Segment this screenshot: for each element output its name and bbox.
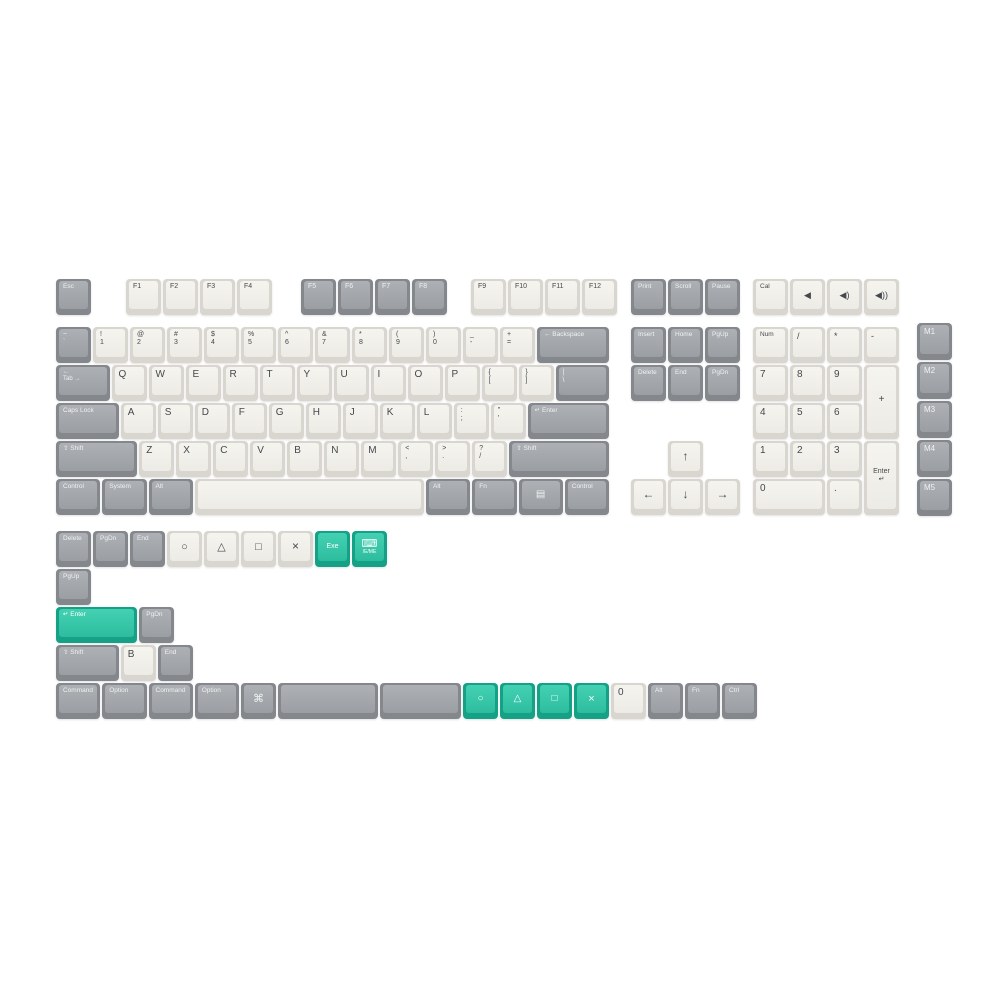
key-np-8: 8 bbox=[790, 365, 825, 401]
key-arrow-right-icon-label: → bbox=[717, 488, 729, 502]
key-m4-label: M4 bbox=[924, 444, 935, 453]
key-arrow-right-icon-cap: → bbox=[708, 481, 737, 509]
key-mute-icon-label: ◀ bbox=[804, 290, 811, 300]
key-f1-cap: F1 bbox=[129, 281, 158, 309]
key-extra-delete-cap: Delete bbox=[59, 533, 88, 561]
key-extra-delete-label: Delete bbox=[63, 535, 82, 542]
key-m3-label: M3 bbox=[924, 405, 935, 414]
key-h-cap: H bbox=[309, 405, 338, 433]
key-v: V bbox=[250, 441, 285, 477]
key-f2-label: F2 bbox=[170, 283, 178, 291]
key-extra-enter-teal-label: ↵ Enter bbox=[63, 611, 86, 618]
key-home: Home bbox=[668, 327, 703, 363]
key-y-cap: Y bbox=[300, 367, 329, 395]
key-f3-cap: F3 bbox=[203, 281, 232, 309]
key-grave-label: ~ bbox=[63, 331, 67, 339]
key-np-9: 9 bbox=[827, 365, 862, 401]
arrow-block: ↑←↓→ bbox=[630, 440, 741, 516]
key-x-label: X bbox=[183, 445, 190, 457]
key-a-label: A bbox=[128, 407, 135, 419]
key-minus: _- bbox=[463, 327, 498, 363]
key-np-7-cap: 7 bbox=[756, 367, 785, 395]
key-6-cap: ^6 bbox=[281, 329, 310, 357]
key-j-cap: J bbox=[346, 405, 375, 433]
key-f3-label: F3 bbox=[207, 283, 215, 291]
key-extra-0-label: 0 bbox=[618, 687, 624, 699]
key-g-cap: G bbox=[272, 405, 301, 433]
key-np-minus-label: - bbox=[871, 331, 874, 341]
key-f11-label: F11 bbox=[552, 283, 564, 291]
nav-block-row-1: DeleteEndPgDn bbox=[630, 364, 741, 402]
function-row-media-row-0: Cal◀◀)◀)) bbox=[752, 278, 900, 316]
key-ralt-cap: Alt bbox=[429, 481, 467, 509]
key-pgup: PgUp bbox=[705, 327, 740, 363]
key-slash-cap: ?/ bbox=[475, 443, 504, 471]
key-m5-cap: M5 bbox=[920, 481, 949, 510]
key-option-2-cap: Option bbox=[198, 685, 236, 713]
function-row-main: EscF1F2F3F4F5F6F7F8F9F10F11F12 bbox=[55, 278, 618, 316]
key-5-cap: %5 bbox=[244, 329, 273, 357]
key-6-label: 6 bbox=[285, 339, 289, 347]
key-np-enter-label: Enter bbox=[873, 468, 890, 476]
key-command-1-cap: Command bbox=[59, 685, 97, 713]
main-block-row-4: ControlSystemAltAltFn▤Control bbox=[55, 478, 610, 516]
key-j-label: J bbox=[350, 407, 355, 419]
extras-block-row-1: PgUp bbox=[55, 568, 758, 606]
key-mute-icon-cap: ◀ bbox=[793, 281, 822, 309]
key-pause-cap: Pause bbox=[708, 281, 737, 309]
key-lbracket-label: { bbox=[489, 369, 491, 377]
key-extra-fn-label: Fn bbox=[692, 687, 700, 694]
key-print-cap: Print bbox=[634, 281, 663, 309]
key-extra-fn: Fn bbox=[685, 683, 720, 719]
key-esc-cap: Esc bbox=[59, 281, 88, 309]
arrow-block-row-1: ←↓→ bbox=[630, 478, 741, 516]
key-f10: F10 bbox=[508, 279, 543, 315]
key-tab-cap: ←Tab → bbox=[59, 367, 107, 395]
key-m1-label: M1 bbox=[924, 327, 935, 336]
key-rcontrol-label: Control bbox=[572, 483, 593, 490]
key-np-8-cap: 8 bbox=[793, 367, 822, 395]
key-tab-label: Tab → bbox=[63, 376, 80, 383]
key-m1-cap: M1 bbox=[920, 325, 949, 354]
key-8-cap: *8 bbox=[355, 329, 384, 357]
key-np-5-label: 5 bbox=[797, 407, 803, 419]
key-n-cap: N bbox=[327, 443, 356, 471]
key-7-label: 7 bbox=[322, 339, 326, 347]
macro-column: M1M2M3M4M5 bbox=[916, 322, 953, 517]
nav-block: InsertHomePgUpDeleteEndPgDn bbox=[630, 326, 741, 402]
key-2-cap: @2 bbox=[133, 329, 162, 357]
key-np-dot: . bbox=[827, 479, 862, 515]
key-3-label: # bbox=[174, 331, 178, 339]
key-comma-label: < bbox=[405, 445, 409, 453]
key-circle-icon-cap: ○ bbox=[170, 533, 199, 561]
key-square-icon: □ bbox=[241, 531, 276, 567]
key-pgdn-label: PgDn bbox=[712, 369, 728, 376]
key-extra-alt-cap: Alt bbox=[651, 685, 680, 713]
key-j: J bbox=[343, 403, 378, 439]
key-d-cap: D bbox=[198, 405, 227, 433]
key-r-cap: R bbox=[226, 367, 255, 395]
key-0: )0 bbox=[426, 327, 461, 363]
key-t: T bbox=[260, 365, 295, 401]
key-z-cap: Z bbox=[142, 443, 171, 471]
macro-column-row-3: M4 bbox=[916, 439, 953, 478]
key-k-label: K bbox=[387, 407, 394, 419]
key-pgup-cap: PgUp bbox=[708, 329, 737, 357]
key-f5-cap: F5 bbox=[304, 281, 333, 309]
key-2-label: 2 bbox=[137, 339, 141, 347]
key-exe: Exe bbox=[315, 531, 350, 567]
key-numlock-cap: Num bbox=[756, 329, 785, 357]
key-exe-cap: Exe bbox=[318, 533, 347, 561]
key-e-cap: E bbox=[189, 367, 218, 395]
key-f4: F4 bbox=[237, 279, 272, 315]
key-arrow-right-icon: → bbox=[705, 479, 740, 515]
key-b-label: B bbox=[294, 445, 301, 457]
key-fn-cap: Fn bbox=[475, 481, 513, 509]
key-delete-cap: Delete bbox=[634, 367, 663, 395]
key-extra-0: 0 bbox=[611, 683, 646, 719]
key-extra-alt-label: Alt bbox=[655, 687, 663, 694]
key-np-2: 2 bbox=[790, 441, 825, 477]
key-np-6-cap: 6 bbox=[830, 405, 859, 433]
key-circle-teal-icon-label: ○ bbox=[477, 693, 483, 705]
key-end-label: End bbox=[675, 369, 687, 376]
key-1-label: 1 bbox=[100, 339, 104, 347]
key-ralt-label: Alt bbox=[433, 483, 441, 490]
key-f2-cap: F2 bbox=[166, 281, 195, 309]
key-np-9-cap: 9 bbox=[830, 367, 859, 395]
key-backslash-label: | bbox=[563, 369, 565, 377]
key-keyboard-novelty-icon: ⌨/E/ME bbox=[352, 531, 387, 567]
key-arrow-left-icon: ← bbox=[631, 479, 666, 515]
key-np-slash-cap: / bbox=[793, 329, 822, 357]
key-9-label: 9 bbox=[396, 339, 400, 347]
key-np-7: 7 bbox=[753, 365, 788, 401]
key-arrow-down-icon-label: ↓ bbox=[683, 488, 689, 502]
nav-block-row-0: InsertHomePgUp bbox=[630, 326, 741, 364]
key-a: A bbox=[121, 403, 156, 439]
key-numlock-label: Num bbox=[760, 331, 774, 338]
key-np-0-label: 0 bbox=[760, 483, 766, 495]
key-e-label: E bbox=[193, 369, 200, 381]
key-5-label: 5 bbox=[248, 339, 252, 347]
key-f12-label: F12 bbox=[589, 283, 601, 291]
key-m3-cap: M3 bbox=[920, 403, 949, 432]
key-0-label: 0 bbox=[433, 339, 437, 347]
key-np-enter-label: ↵ bbox=[879, 476, 885, 484]
key-k-cap: K bbox=[383, 405, 412, 433]
key-np-plus-cap: + bbox=[867, 367, 896, 433]
key-0-cap: )0 bbox=[429, 329, 458, 357]
key-m4-cap: M4 bbox=[920, 442, 949, 471]
key-np-4: 4 bbox=[753, 403, 788, 439]
key-extra-ctrl: Ctrl bbox=[722, 683, 757, 719]
key-backspace: ← Backspace bbox=[537, 327, 609, 363]
key-cmd-symbol-icon: ⌘ bbox=[241, 683, 276, 719]
key-p: P bbox=[445, 365, 480, 401]
key-space-gray-2 bbox=[380, 683, 461, 719]
key-f9: F9 bbox=[471, 279, 506, 315]
key-minus-label: - bbox=[470, 339, 472, 347]
key-3-label: 3 bbox=[174, 339, 178, 347]
key-np-4-cap: 4 bbox=[756, 405, 785, 433]
key-quote-label: " bbox=[498, 407, 501, 415]
extras-block-row-3: ⇧ ShiftBEnd bbox=[55, 644, 758, 682]
key-circle-icon: ○ bbox=[167, 531, 202, 567]
key-extra-end-label: End bbox=[137, 535, 149, 542]
key-enter: ↵ Enter bbox=[528, 403, 609, 439]
key-np-6-label: 6 bbox=[834, 407, 840, 419]
key-keyboard-novelty-icon-label: ⌨ bbox=[362, 539, 378, 550]
key-3: #3 bbox=[167, 327, 202, 363]
key-delete-label: Delete bbox=[638, 369, 657, 376]
key-np-3: 3 bbox=[827, 441, 862, 477]
key-menu-icon-cap: ▤ bbox=[522, 481, 560, 509]
key-extra-b-label: B bbox=[128, 649, 135, 661]
key-5: %5 bbox=[241, 327, 276, 363]
key-extra-shift-cap: ⇧ Shift bbox=[59, 647, 116, 675]
key-f6-cap: F6 bbox=[341, 281, 370, 309]
key-grave: ~` bbox=[56, 327, 91, 363]
key-cross-icon-cap: × bbox=[281, 533, 310, 561]
key-np-2-label: 2 bbox=[797, 445, 803, 457]
key-6-label: ^ bbox=[285, 331, 288, 339]
key-7-cap: &7 bbox=[318, 329, 347, 357]
key-f7: F7 bbox=[375, 279, 410, 315]
key-w: W bbox=[149, 365, 184, 401]
key-m2-cap: M2 bbox=[920, 364, 949, 393]
key-capslock-cap: Caps Lock bbox=[59, 405, 116, 433]
key-n: N bbox=[324, 441, 359, 477]
key-insert: Insert bbox=[631, 327, 666, 363]
key-6: ^6 bbox=[278, 327, 313, 363]
key-t-label: T bbox=[267, 369, 273, 381]
key-circle-icon-label: ○ bbox=[181, 541, 188, 554]
key-rbracket: }] bbox=[519, 365, 554, 401]
main-block-row-2: Caps LockASDFGHJKL:;"'↵ Enter bbox=[55, 402, 610, 440]
key-v-label: V bbox=[257, 445, 264, 457]
key-circle-teal-icon-cap: ○ bbox=[466, 685, 495, 713]
key-np-5-cap: 5 bbox=[793, 405, 822, 433]
key-f2: F2 bbox=[163, 279, 198, 315]
key-extra-pgup: PgUp bbox=[56, 569, 91, 605]
key-m-label: M bbox=[368, 445, 376, 457]
key-rbracket-label: } bbox=[526, 369, 528, 377]
key-0-label: ) bbox=[433, 331, 435, 339]
key-insert-cap: Insert bbox=[634, 329, 663, 357]
key-command-2-label: Command bbox=[156, 687, 186, 694]
key-lshift: ⇧ Shift bbox=[56, 441, 137, 477]
key-backslash: |\ bbox=[556, 365, 610, 401]
key-r-label: R bbox=[230, 369, 237, 381]
key-f4-label: F4 bbox=[244, 283, 252, 291]
key-menu-icon-label: ▤ bbox=[536, 489, 545, 501]
key-np-3-cap: 3 bbox=[830, 443, 859, 471]
key-equal-label: = bbox=[507, 339, 511, 347]
key-np-enter: Enter↵ bbox=[864, 441, 899, 515]
key-period-label: . bbox=[442, 453, 444, 461]
key-volume-down-icon: ◀) bbox=[827, 279, 862, 315]
key-u-cap: U bbox=[337, 367, 366, 395]
key-9-label: ( bbox=[396, 331, 398, 339]
key-g-label: G bbox=[276, 407, 284, 419]
key-insert-label: Insert bbox=[638, 331, 654, 338]
key-triangle-icon-label: △ bbox=[217, 541, 225, 554]
main-block: ~`!1@2#3$4%5^6&7*8(9)0_-+=← Backspace←Ta… bbox=[55, 326, 610, 516]
key-semicolon: :; bbox=[454, 403, 489, 439]
key-capslock-label: Caps Lock bbox=[63, 407, 94, 414]
key-4-label: 4 bbox=[211, 339, 215, 347]
key-u: U bbox=[334, 365, 369, 401]
key-np-enter-cap: Enter↵ bbox=[867, 443, 896, 509]
key-v-cap: V bbox=[253, 443, 282, 471]
key-np-0: 0 bbox=[753, 479, 825, 515]
key-p-label: P bbox=[452, 369, 459, 381]
key-f7-cap: F7 bbox=[378, 281, 407, 309]
key-extra-b-cap: B bbox=[124, 647, 153, 675]
key-lshift-label: ⇧ Shift bbox=[63, 445, 83, 452]
key-keyboard-novelty-icon-label: /E/ME bbox=[363, 550, 377, 556]
key-option-2: Option bbox=[195, 683, 239, 719]
key-slash: ?/ bbox=[472, 441, 507, 477]
key-np-2-cap: 2 bbox=[793, 443, 822, 471]
key-arrow-up-icon: ↑ bbox=[668, 441, 703, 477]
key-print-label: Print bbox=[638, 283, 651, 290]
key-option-1-label: Option bbox=[109, 687, 128, 694]
key-u-label: U bbox=[341, 369, 348, 381]
key-m2-label: M2 bbox=[924, 366, 935, 375]
key-np-1-label: 1 bbox=[760, 445, 766, 457]
macro-column-row-0: M1 bbox=[916, 322, 953, 361]
key-extra-end-cap: End bbox=[133, 533, 162, 561]
key-g: G bbox=[269, 403, 304, 439]
macro-column-row-1: M2 bbox=[916, 361, 953, 400]
key-system-label: System bbox=[109, 483, 131, 490]
key-l-label: L bbox=[424, 407, 430, 419]
key-extra-pgdn-2-label: PgDn bbox=[146, 611, 162, 618]
key-extra-0-cap: 0 bbox=[614, 685, 643, 713]
key-o-label: O bbox=[415, 369, 423, 381]
key-exe-label: Exe bbox=[326, 543, 338, 551]
key-l-cap: L bbox=[420, 405, 449, 433]
key-arrow-up-icon-label: ↑ bbox=[683, 450, 689, 464]
key-tab-label: ← bbox=[63, 369, 69, 376]
key-m3: M3 bbox=[917, 401, 952, 438]
key-m4: M4 bbox=[917, 440, 952, 477]
key-square-teal-icon-cap: □ bbox=[540, 685, 569, 713]
key-np-9-label: 9 bbox=[834, 369, 840, 381]
key-command-1: Command bbox=[56, 683, 100, 719]
key-extra-pgdn: PgDn bbox=[93, 531, 128, 567]
key-8: *8 bbox=[352, 327, 387, 363]
key-rshift-label: ⇧ Shift bbox=[516, 445, 536, 452]
key-s-cap: S bbox=[161, 405, 190, 433]
key-s: S bbox=[158, 403, 193, 439]
main-block-row-3: ⇧ ShiftZXCVBNM<,>.?/⇧ Shift bbox=[55, 440, 610, 478]
key-enter-cap: ↵ Enter bbox=[531, 405, 606, 433]
key-fn: Fn bbox=[472, 479, 516, 515]
key-fn-label: Fn bbox=[479, 483, 487, 490]
key-k: K bbox=[380, 403, 415, 439]
extras-block-row-2: ↵ EnterPgDn bbox=[55, 606, 758, 644]
numpad-block-row-0: Num/*- bbox=[752, 326, 900, 364]
key-f-cap: F bbox=[235, 405, 264, 433]
numpad-block: Num/*-789+456123Enter↵0. bbox=[752, 326, 900, 516]
key-lshift-cap: ⇧ Shift bbox=[59, 443, 134, 471]
key-b-cap: B bbox=[290, 443, 319, 471]
key-extra-fn-cap: Fn bbox=[688, 685, 717, 713]
key-arrow-down-icon-cap: ↓ bbox=[671, 481, 700, 509]
key-h: H bbox=[306, 403, 341, 439]
key-command-2-cap: Command bbox=[152, 685, 190, 713]
key-equal: += bbox=[500, 327, 535, 363]
key-np-1: 1 bbox=[753, 441, 788, 477]
key-period-label: > bbox=[442, 445, 446, 453]
key-q-cap: Q bbox=[115, 367, 144, 395]
key-cross-icon-label: × bbox=[292, 540, 299, 554]
key-c-cap: C bbox=[216, 443, 245, 471]
key-m2: M2 bbox=[917, 362, 952, 399]
key-f-label: F bbox=[239, 407, 245, 419]
key-f11-cap: F11 bbox=[548, 281, 577, 309]
key-extra-pgdn-2-cap: PgDn bbox=[142, 609, 171, 637]
key-comma: <, bbox=[398, 441, 433, 477]
key-triangle-teal-icon-label: △ bbox=[514, 693, 522, 705]
key-np-5: 5 bbox=[790, 403, 825, 439]
key-print: Print bbox=[631, 279, 666, 315]
key-d-label: D bbox=[202, 407, 209, 419]
key-1-cap: !1 bbox=[96, 329, 125, 357]
key-f11: F11 bbox=[545, 279, 580, 315]
key-np-7-label: 7 bbox=[760, 369, 766, 381]
key-extra-end-2: End bbox=[158, 645, 193, 681]
key-pgup-label: PgUp bbox=[712, 331, 728, 338]
key-capslock: Caps Lock bbox=[56, 403, 119, 439]
key-square-icon-cap: □ bbox=[244, 533, 273, 561]
key-keyboard-novelty-icon-cap: ⌨/E/ME bbox=[355, 533, 384, 561]
key-o: O bbox=[408, 365, 443, 401]
key-m-cap: M bbox=[364, 443, 393, 471]
key-extra-b: B bbox=[121, 645, 156, 681]
key-f4-cap: F4 bbox=[240, 281, 269, 309]
key-arrow-left-icon-cap: ← bbox=[634, 481, 663, 509]
key-f6-label: F6 bbox=[345, 283, 353, 291]
key-np-dot-cap: . bbox=[830, 481, 859, 509]
key-system-cap: System bbox=[105, 481, 143, 509]
extras-block-row-4: CommandOptionCommandOption⌘○△□×0AltFnCtr… bbox=[55, 682, 758, 720]
key-rshift-cap: ⇧ Shift bbox=[512, 443, 606, 471]
key-extra-shift: ⇧ Shift bbox=[56, 645, 119, 681]
key-comma-label: , bbox=[405, 453, 407, 461]
key-semicolon-cap: :; bbox=[457, 405, 486, 433]
key-f1: F1 bbox=[126, 279, 161, 315]
key-volume-up-icon: ◀)) bbox=[864, 279, 899, 315]
key-np-4-label: 4 bbox=[760, 407, 766, 419]
extras-block: DeletePgDnEnd○△□×Exe⌨/E/MEPgUp↵ EnterPgD… bbox=[55, 530, 758, 720]
key-lbracket-label: [ bbox=[489, 377, 491, 385]
key-r: R bbox=[223, 365, 258, 401]
key-minus-label: _ bbox=[470, 331, 474, 339]
key-2-label: @ bbox=[137, 331, 144, 339]
key-equal-cap: += bbox=[503, 329, 532, 357]
keycap-set-board: EscF1F2F3F4F5F6F7F8F9F10F11F12PrintScrol… bbox=[0, 0, 1000, 1000]
key-comma-cap: <, bbox=[401, 443, 430, 471]
key-np-1-cap: 1 bbox=[756, 443, 785, 471]
key-end: End bbox=[668, 365, 703, 401]
